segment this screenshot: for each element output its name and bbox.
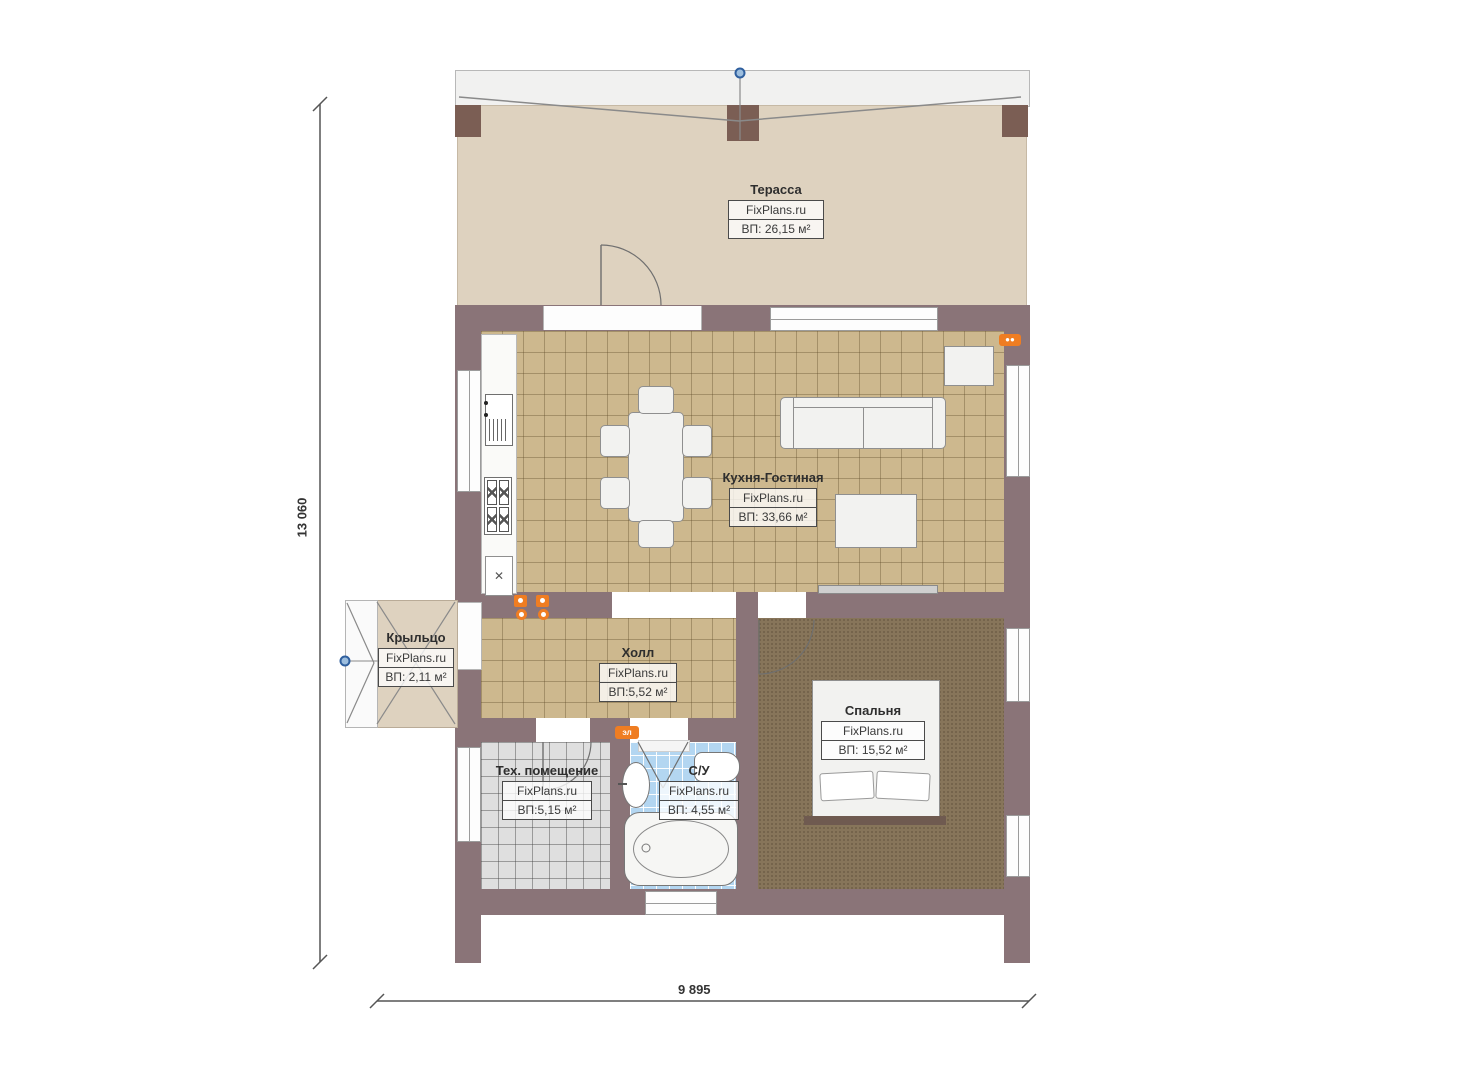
faucet-dot-2 (484, 413, 488, 417)
burner-icon (499, 480, 509, 505)
room-label-bathroom: С/У FixPlans.ru ВП: 4,55 м² (659, 763, 739, 820)
room-info-box: FixPlans.ru ВП: 26,15 м² (728, 200, 824, 239)
room-info-box: FixPlans.ru ВП: 33,66 м² (729, 488, 817, 527)
room-title: Спальня (845, 703, 901, 718)
kitchen-sink (485, 394, 513, 446)
kitchen-stove (484, 477, 512, 535)
window-tech-left (457, 747, 481, 842)
floor-plan-canvas: ✕ ●● эл (0, 0, 1474, 1080)
room-label-kitchen-living: Кухня-Гостиная FixPlans.ru ВП: 33,66 м² (729, 470, 817, 527)
wall-top (455, 305, 1030, 331)
sofa-armrest-left (781, 398, 794, 448)
window-living-top (770, 307, 938, 331)
dining-chair-right-2 (682, 477, 712, 509)
room-title: С/У (688, 763, 709, 778)
dining-chair-left-1 (600, 425, 630, 457)
room-title: Терасса (750, 182, 802, 197)
room-area-text: ВП: 15,52 м² (822, 740, 924, 759)
bathtub-inner (633, 820, 729, 878)
terrace-post-center (727, 105, 759, 141)
room-info-box: FixPlans.ru ВП:5,15 м² (502, 781, 592, 820)
burner-icon (487, 507, 497, 532)
socket-square (536, 595, 549, 607)
socket-icon-1 (514, 595, 528, 620)
bathtub (624, 812, 738, 886)
socket-square (514, 595, 527, 607)
burner-icon (499, 507, 509, 532)
room-title: Кухня-Гостиная (722, 470, 823, 485)
dimension-bottom-label: 9 895 (678, 982, 711, 997)
foundation-leg-right (1004, 915, 1030, 963)
room-area-text: ВП: 26,15 м² (729, 219, 823, 238)
sofa-armrest-right (932, 398, 945, 448)
dining-chair-top (638, 386, 674, 414)
room-info-box: FixPlans.ru ВП:5,52 м² (599, 663, 677, 702)
foundation-leg-left (455, 915, 481, 963)
burner-icon (487, 480, 497, 505)
bathroom-sink (622, 762, 650, 808)
room-area-text: ВП:5,52 м² (600, 682, 676, 701)
wall-hall-tech-1 (481, 718, 536, 742)
room-label-hall: Холл FixPlans.ru ВП:5,52 м² (599, 645, 677, 702)
faucet-dot-1 (484, 401, 488, 405)
room-title: Тех. помещение (496, 763, 599, 778)
room-label-tech-room: Тех. помещение FixPlans.ru ВП:5,15 м² (502, 763, 592, 820)
bed-headboard (804, 816, 946, 825)
watermark-text: FixPlans.ru (729, 201, 823, 219)
room-area-text: ВП: 2,11 м² (379, 667, 453, 686)
window-bathroom-bottom (645, 891, 717, 915)
kitchen-counter (481, 334, 517, 594)
electric-panel-marker: эл (615, 726, 639, 739)
tv-stand (818, 585, 938, 594)
watermark-text: FixPlans.ru (660, 782, 738, 800)
terrace-door-opening (543, 306, 702, 330)
room-area-text: ВП: 33,66 м² (730, 507, 816, 526)
dining-chair-right-1 (682, 425, 712, 457)
unit-cross-icon: ✕ (494, 569, 504, 583)
dimension-left-label: 13 060 (294, 498, 309, 538)
watermark-text: FixPlans.ru (730, 489, 816, 507)
sofa-seat-split (863, 407, 864, 448)
coffee-table (835, 494, 917, 548)
watermark-text: FixPlans.ru (822, 722, 924, 740)
room-title: Холл (622, 645, 655, 660)
wall-hall-bath (688, 718, 736, 742)
sofa (780, 397, 946, 449)
window-kitchen-left (457, 370, 481, 492)
wall-living-bedroom (806, 592, 1004, 618)
bed-pillow-right (875, 771, 930, 802)
terrace-post-right (1002, 105, 1028, 137)
kitchen-living-floor (481, 331, 1004, 592)
bathroom-door-mat (638, 740, 690, 752)
wall-hall-bedroom-vertical (736, 592, 758, 889)
room-area-text: ВП: 4,55 м² (660, 800, 738, 819)
bed-pillow-left (819, 771, 874, 802)
socket-icon-2 (536, 595, 550, 620)
watermark-text: FixPlans.ru (379, 649, 453, 667)
dining-chair-left-2 (600, 477, 630, 509)
dining-chair-bottom (638, 520, 674, 548)
window-bedroom-right-1 (1006, 628, 1030, 702)
room-label-terrace: Терасса FixPlans.ru ВП: 26,15 м² (728, 182, 824, 239)
porch-steps (345, 600, 378, 728)
room-info-box: FixPlans.ru ВП: 4,55 м² (659, 781, 739, 820)
porch-door-opening (456, 602, 482, 670)
dimension-left-ticks (313, 97, 327, 969)
window-bedroom-right-2 (1006, 815, 1030, 877)
room-area-text: ВП:5,15 м² (503, 800, 591, 819)
terrace-post-left (455, 105, 481, 137)
watermark-text: FixPlans.ru (600, 664, 676, 682)
room-info-box: FixPlans.ru ВП: 2,11 м² (378, 648, 454, 687)
room-info-box: FixPlans.ru ВП: 15,52 м² (821, 721, 925, 760)
dining-table (628, 412, 684, 522)
wall-bottom (455, 889, 1030, 915)
terrace-roof-band (455, 70, 1030, 107)
room-title: Крыльцо (386, 630, 445, 645)
sink-hatch (489, 419, 509, 441)
socket-circle (538, 609, 549, 620)
socket-circle (516, 609, 527, 620)
watermark-text: FixPlans.ru (503, 782, 591, 800)
room-label-bedroom: Спальня FixPlans.ru ВП: 15,52 м² (821, 703, 925, 760)
window-living-right (1006, 365, 1030, 477)
radiator-marker-icon: ●● (999, 334, 1021, 346)
kitchen-base-unit: ✕ (485, 556, 513, 596)
side-table (944, 346, 994, 386)
room-label-porch: Крыльцо FixPlans.ru ВП: 2,11 м² (378, 630, 454, 687)
